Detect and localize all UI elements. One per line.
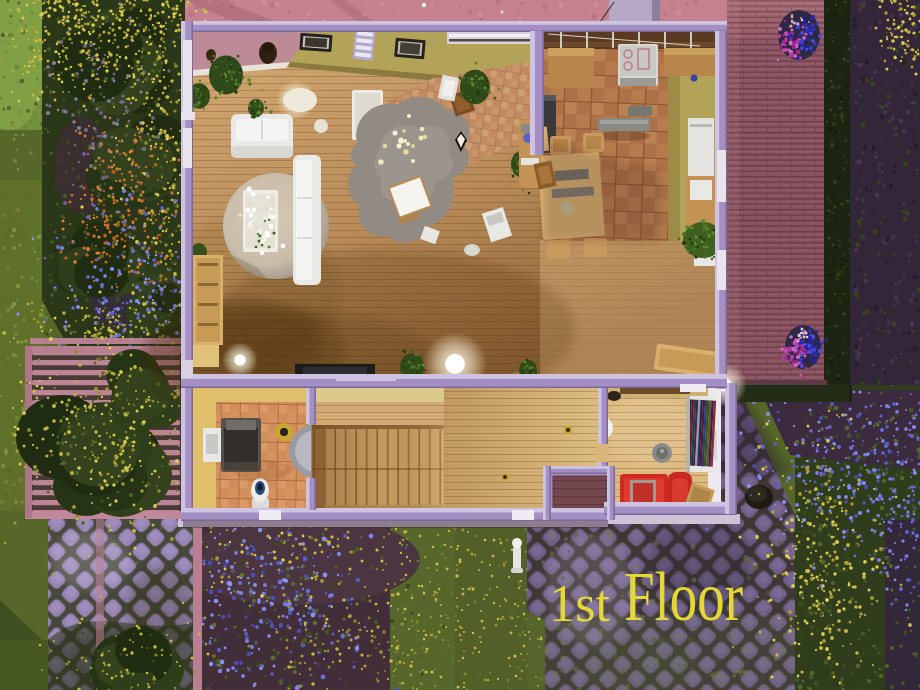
svg-text:1st: 1st: [549, 575, 611, 632]
svg-text:Floor: Floor: [624, 559, 743, 635]
